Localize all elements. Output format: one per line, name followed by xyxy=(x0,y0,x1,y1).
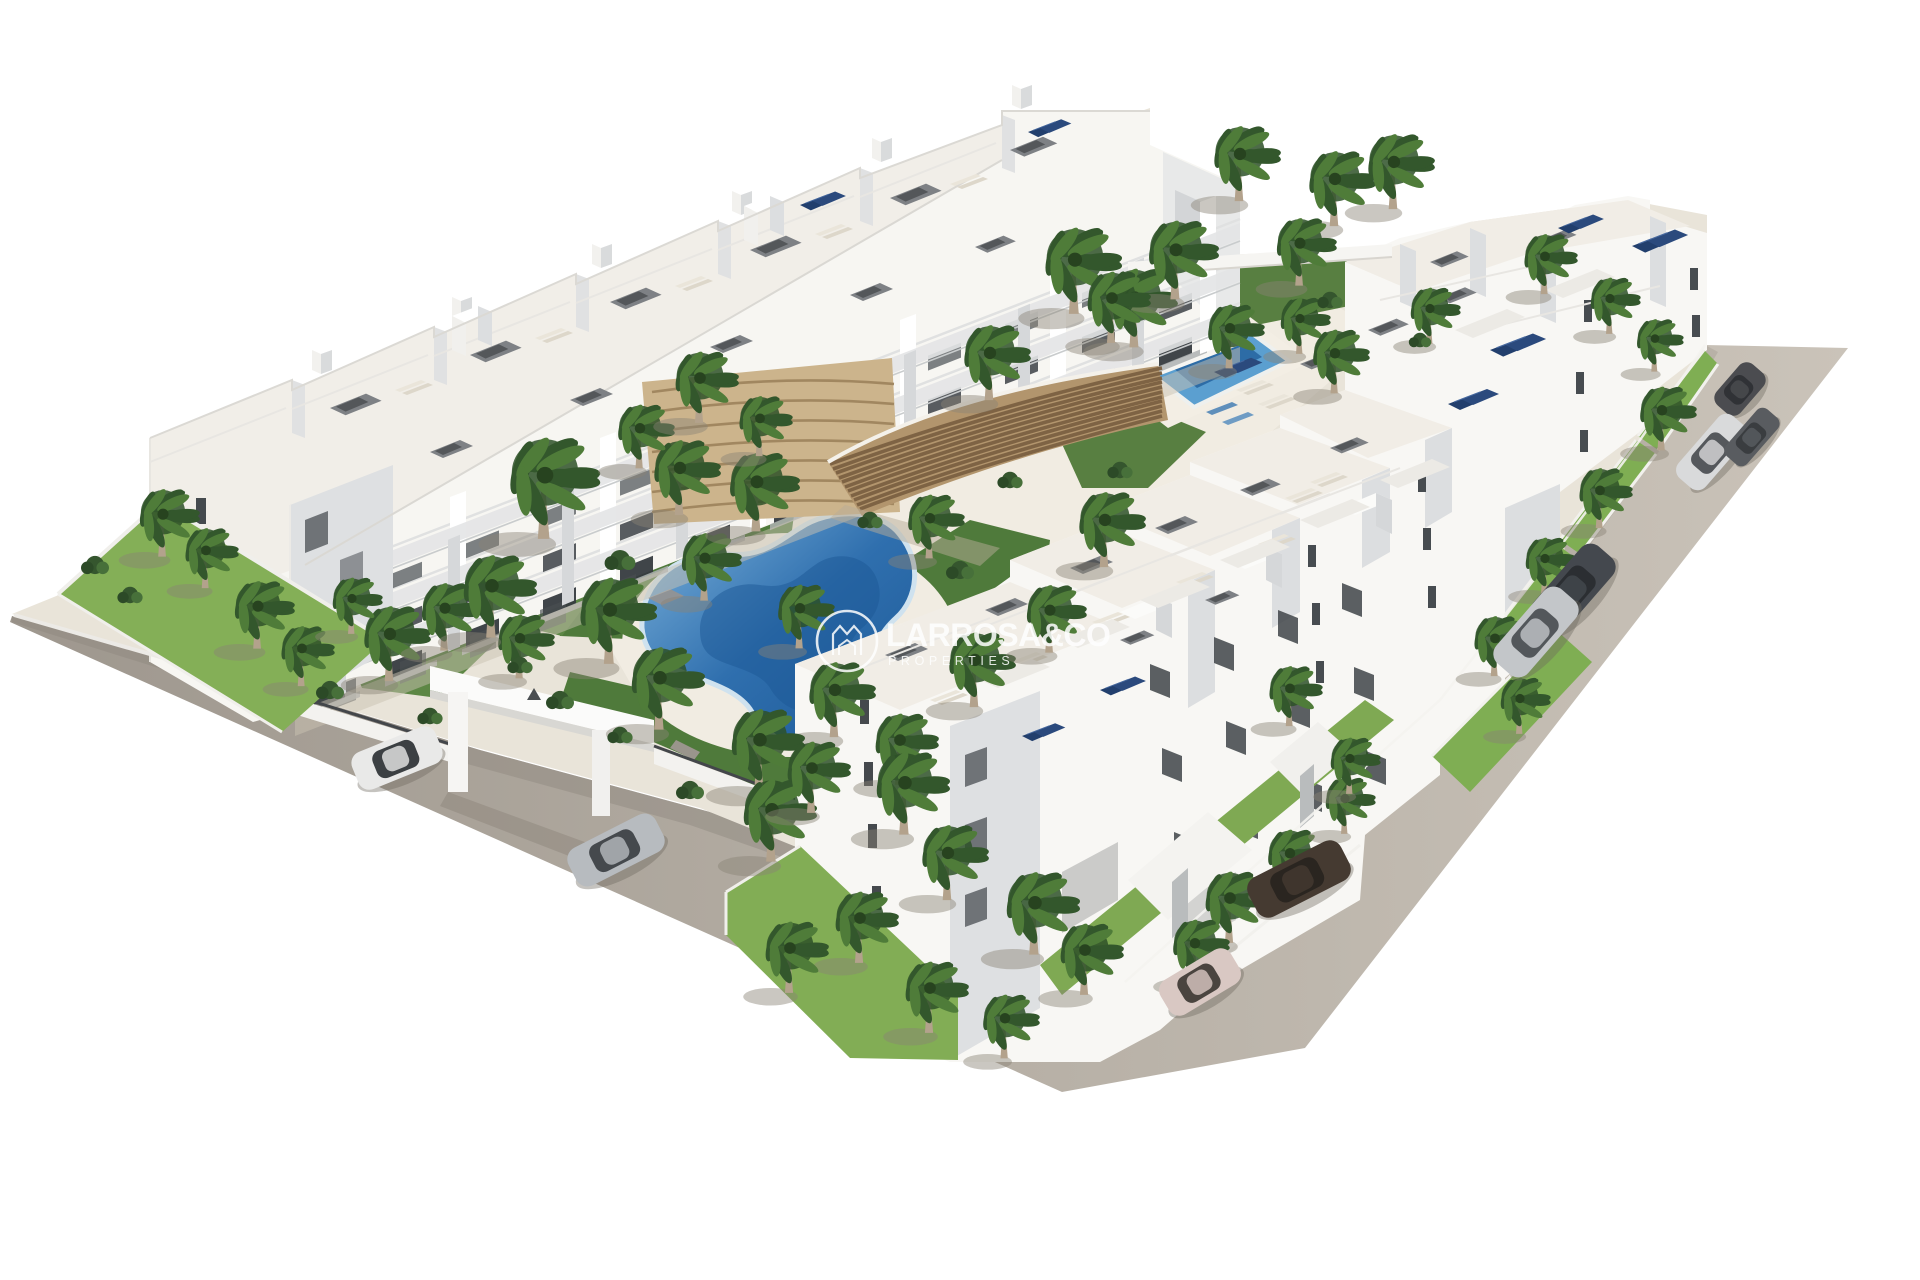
svg-text:LARROSA&CO: LARROSA&CO xyxy=(886,617,1110,653)
svg-text:PROPERTIES: PROPERTIES xyxy=(888,654,1014,668)
